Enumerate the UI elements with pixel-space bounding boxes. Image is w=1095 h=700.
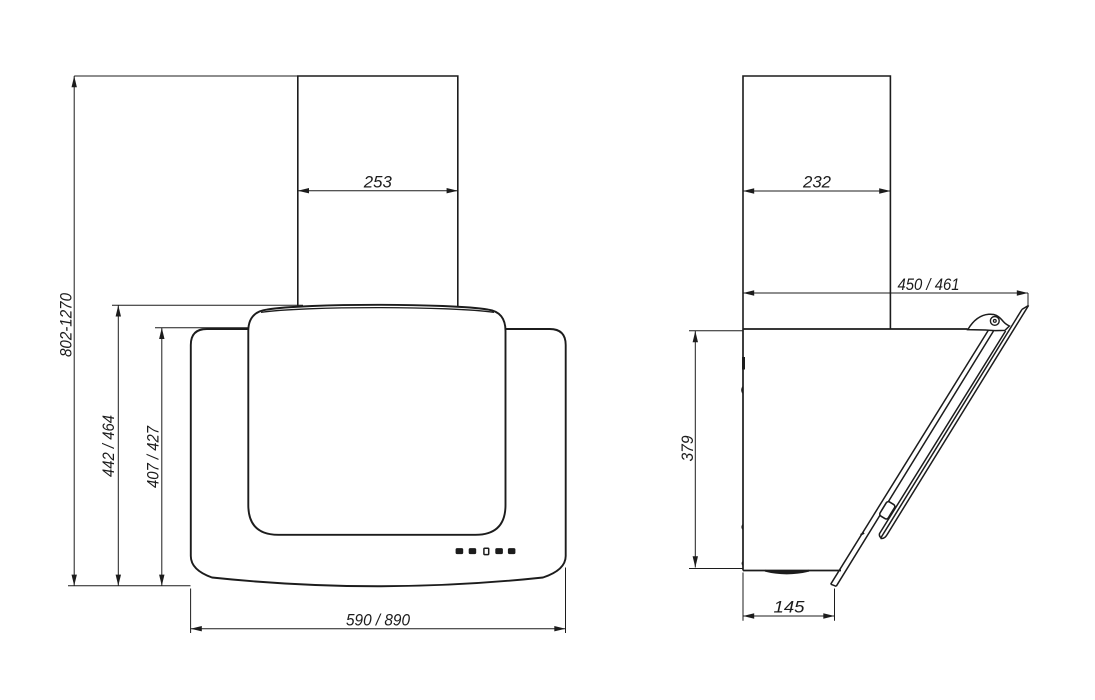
svg-text:145: 145 xyxy=(774,598,806,617)
svg-text:253: 253 xyxy=(363,173,393,192)
svg-text:590 / 890: 590 / 890 xyxy=(346,611,410,630)
svg-text:407 / 427: 407 / 427 xyxy=(144,426,163,488)
svg-text:442 / 464: 442 / 464 xyxy=(99,415,118,477)
svg-text:379: 379 xyxy=(678,435,697,461)
svg-text:802-1270: 802-1270 xyxy=(57,293,76,357)
svg-text:232: 232 xyxy=(802,173,832,192)
svg-text:450 / 461: 450 / 461 xyxy=(898,275,960,294)
